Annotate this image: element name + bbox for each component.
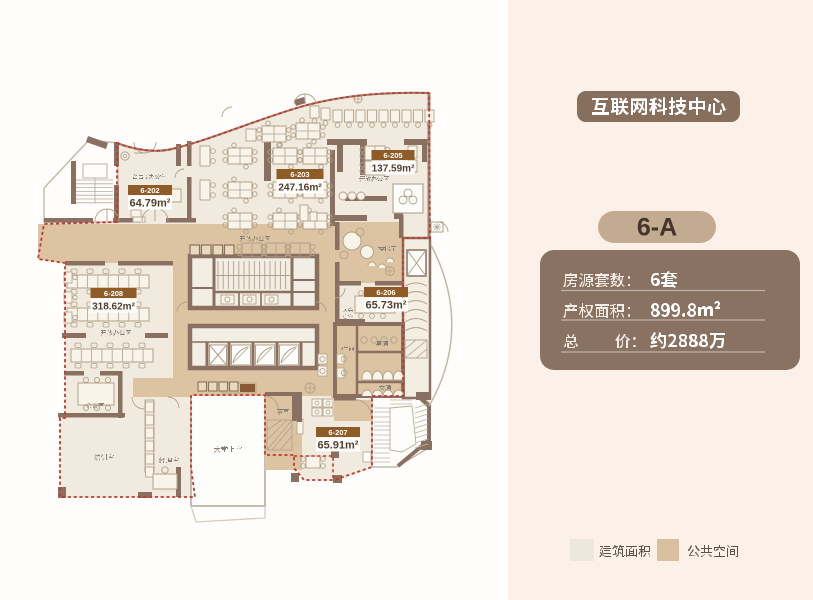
svg-text:65.91m²: 65.91m²: [318, 440, 359, 452]
svg-text:6-203: 6-203: [290, 170, 309, 179]
svg-text:6-208: 6-208: [104, 289, 123, 298]
svg-text:6-205: 6-205: [383, 151, 402, 160]
svg-text:247.16m²: 247.16m²: [278, 183, 322, 194]
svg-text:318.62m²: 318.62m²: [92, 302, 135, 313]
svg-text:6-207: 6-207: [328, 428, 347, 437]
svg-text:6-202: 6-202: [140, 186, 159, 195]
svg-text:6-206: 6-206: [376, 288, 395, 297]
svg-text:137.59m²: 137.59m²: [372, 164, 415, 175]
svg-text:65.73m²: 65.73m²: [366, 300, 407, 312]
svg-text:6-A: 6-A: [637, 214, 677, 242]
svg-text:64.79m²: 64.79m²: [130, 198, 171, 210]
